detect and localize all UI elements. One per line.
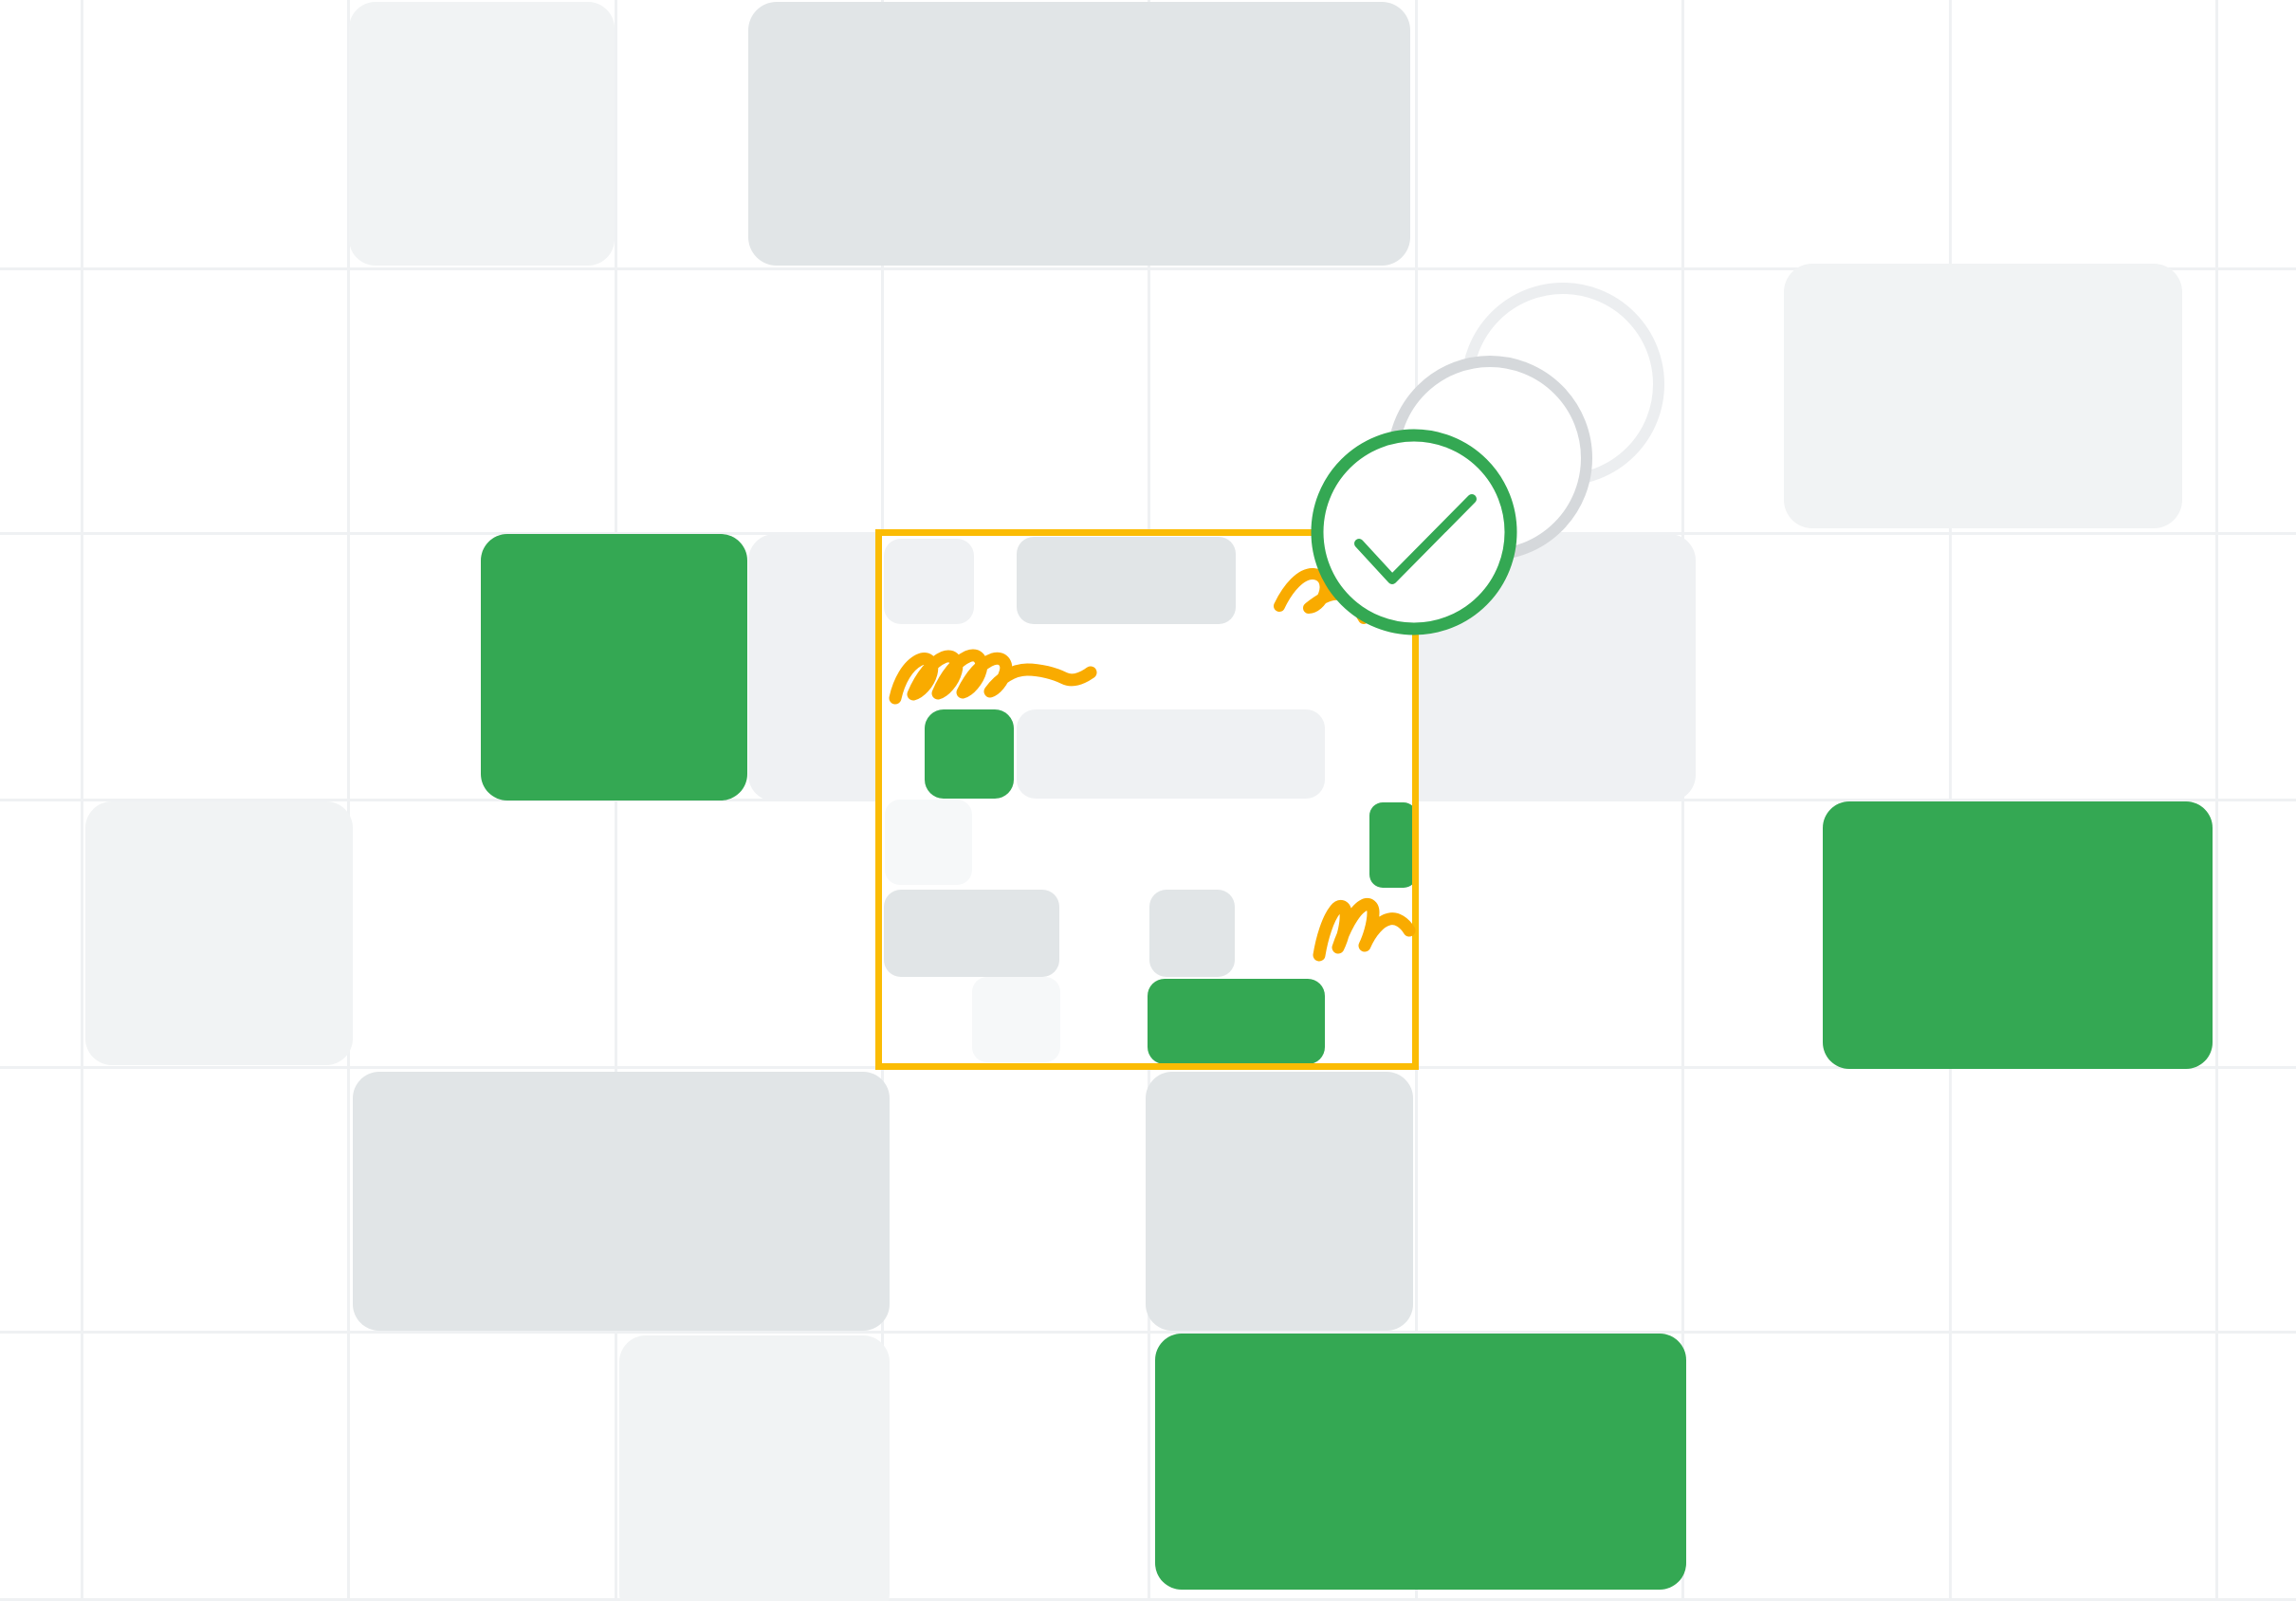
scribble-bottom-right-icon (1319, 904, 1409, 955)
illustration-canvas (0, 0, 2296, 1601)
scribbles-group (895, 574, 1409, 955)
scribble-middle-icon (895, 655, 1091, 698)
check-circle (1317, 435, 1511, 629)
status-circles-group (1317, 288, 1659, 629)
overlay-graphics (0, 0, 2296, 1601)
